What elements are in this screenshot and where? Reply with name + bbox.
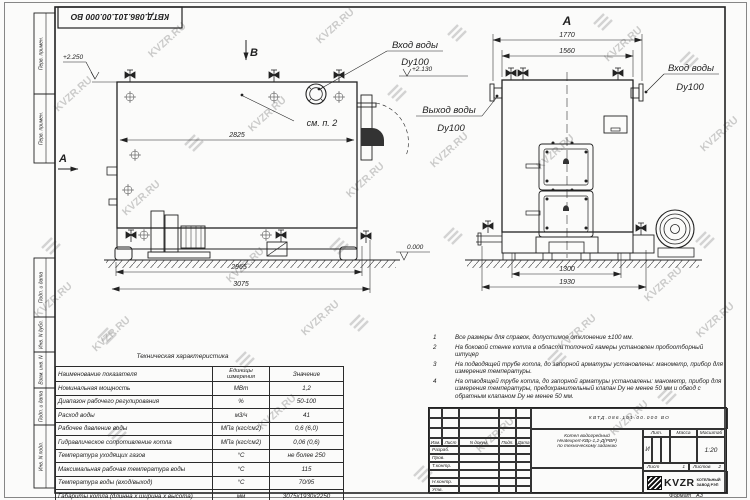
- table-row: Максимальная рабочая температура воды°С1…: [56, 463, 344, 477]
- format-note: Формат А3: [640, 493, 732, 499]
- inlet-water-label-front: Вход воды: [668, 63, 714, 74]
- watermark-text: KVZR.RU: [698, 114, 741, 154]
- row-name: Расход воды: [56, 409, 213, 423]
- row-utv: Утв.: [429, 486, 459, 494]
- elevation-mid: +2.130: [412, 66, 432, 73]
- margin-label-perv-primen-1: Перв. примен.: [39, 37, 45, 70]
- row-value: 3075х1930х2250: [270, 490, 344, 500]
- side-view: [104, 70, 408, 268]
- row-units: м3/ч: [213, 409, 270, 423]
- row-value: не более 250: [270, 449, 344, 463]
- watermark-text: KVZR.RU: [602, 24, 645, 64]
- dim-2965: 2965: [230, 264, 247, 271]
- table-row: Гидравлическое сопротивление котлаМПа (к…: [56, 436, 344, 450]
- note-item: 4На отводящей трубе котла, до запорной а…: [429, 378, 726, 400]
- elevation-zero: 0.000: [407, 244, 424, 251]
- exhaust-fan: [633, 210, 694, 257]
- inlet-water-dn-front: Dy100: [676, 82, 704, 93]
- note-text: На отводящей трубе котла, до запорной ар…: [455, 378, 726, 400]
- dim-1770: 1770: [559, 32, 575, 39]
- dim-2825: 2825: [228, 132, 245, 139]
- row-tkontr: Т.контр.: [429, 462, 459, 470]
- watermark-text: KVZR.RU: [344, 160, 387, 200]
- kvzr-stripes-icon: [647, 476, 662, 490]
- col-izm: Изм.: [429, 438, 442, 446]
- row-name: Диапазон рабочего регулирования: [56, 395, 213, 409]
- dim-3075: 3075: [233, 281, 249, 288]
- table-row: Рабочее давление водыМПа (кгс/см2)0,6 (6…: [56, 422, 344, 436]
- col-data: Дата: [516, 438, 531, 446]
- note-text: На боковой стенке котла в области топочн…: [455, 344, 726, 359]
- row-name: Максимальная рабочая температура воды: [56, 463, 213, 477]
- row-value: 0,6 (6,0): [270, 422, 344, 436]
- row-nkontr: Н.контр.: [429, 478, 459, 486]
- row-value: 0,06 (0,6): [270, 436, 344, 450]
- dim-1930: 1930: [559, 279, 575, 286]
- row-units: °С: [213, 476, 270, 490]
- outlet-water-dn: Dy100: [437, 123, 465, 134]
- kvzr-subtitle-line1: КОТЕЛЬНЫЙ: [697, 478, 721, 482]
- dim-1560: 1560: [559, 48, 575, 55]
- sheets-cell: Листов 2: [689, 463, 725, 471]
- front-view-dimensions: 1770 1560 1300 1930 Вход воды Dy100: [482, 32, 719, 291]
- watermark-text: KVZR.RU: [534, 132, 577, 172]
- revision-header-row: Изм. Лист N докум. Подп. Дата: [429, 438, 531, 446]
- drawing-sheet: KVZR.RU KVZR.RU KVZR.RU KVZR.RU KVZR.RU …: [0, 0, 750, 500]
- col-podp: Подп.: [499, 438, 516, 446]
- empty-cell: [531, 468, 643, 494]
- corner-stamp-designation: КВТД.086.101.00.000 ВО: [70, 12, 169, 22]
- row-value: 1,2: [270, 382, 344, 396]
- row-units: мм: [213, 490, 270, 500]
- watermark-text: KVZR.RU: [642, 264, 685, 304]
- format-label: Формат: [669, 493, 691, 499]
- sheet-cell: Лист 1: [643, 463, 689, 471]
- mass-header: Масса: [670, 429, 697, 437]
- note-item: 3На подводящей трубе котла, до запорной …: [429, 361, 726, 376]
- outlet-water-label: Выход воды: [422, 105, 475, 116]
- tech-col-value: Значение: [270, 367, 344, 382]
- row-name: Гидравлическое сопротивление котла: [56, 436, 213, 450]
- front-drain-valve: [476, 221, 502, 245]
- row-name: Рабочее давление воды: [56, 422, 213, 436]
- row-units: °С: [213, 449, 270, 463]
- note-number: 2: [429, 344, 455, 359]
- burner-fan-unit: [148, 211, 210, 258]
- col-list: Лист: [442, 438, 459, 446]
- elevation-top: +2.250: [63, 54, 83, 61]
- sheet-label: Лист: [647, 465, 659, 470]
- margin-label-inv-dubl: Инв. N дубл.: [39, 320, 45, 349]
- inlet-water-label: Вход воды: [392, 40, 438, 51]
- margin-label-podp-data-2: Подп. и дата: [39, 391, 45, 423]
- watermark-text: KVZR.RU: [246, 94, 289, 134]
- row-razrab: Разраб.: [429, 446, 459, 454]
- note-text: Все размеры для справок, допустимое откл…: [455, 334, 726, 341]
- tech-col-name: Наименование показателя: [56, 367, 213, 382]
- document-name-line3: по техническому заданию: [532, 444, 642, 449]
- margin-label-vzam-inv: Взам. инв. N: [39, 355, 45, 385]
- row-units: °С: [213, 463, 270, 477]
- company-logo: KVZR КОТЕЛЬНЫЙ ЗАВОД РЭП: [643, 471, 728, 494]
- sheet-value: 1: [682, 465, 685, 470]
- row-units: МПа (кгс/см2): [213, 436, 270, 450]
- row-units: %: [213, 395, 270, 409]
- notes-list: 1Все размеры для справок, допустимое отк…: [429, 334, 726, 402]
- scale-header: Масштаб: [697, 429, 725, 437]
- corner-stamp: КВТД.086.101.00.000 ВО: [58, 7, 182, 28]
- title-block: Изм. Лист N докум. Подп. Дата Разраб. Пр…: [428, 407, 727, 493]
- lit-cell-2: [652, 437, 661, 463]
- note-text: На подводящей трубе котла, до запорной а…: [455, 361, 726, 376]
- row-name: Номинальная мощность: [56, 382, 213, 396]
- row-name: Температура уходящих газов: [56, 449, 213, 463]
- margin-label-perv-primen-2: Перв. примен.: [39, 112, 45, 145]
- valve-icons: [125, 70, 371, 243]
- row-value: 115: [270, 463, 344, 477]
- format-value: А3: [696, 493, 703, 499]
- kvzr-subtitle-line2: ЗАВОД РЭП: [697, 483, 721, 487]
- lit-cell-3: [661, 437, 670, 463]
- kvzr-brand: KVZR: [664, 477, 695, 489]
- tech-table-header-row: Наименование показателя Единицы измерени…: [56, 367, 344, 382]
- signature-rows: Разраб. Пров. Т.контр. Н.контр. Утв.: [429, 446, 531, 494]
- note-number: 1: [429, 334, 455, 341]
- note-item: 2На боковой стенке котла в области топоч…: [429, 344, 726, 359]
- view-a-label: А: [562, 14, 572, 28]
- watermark-text: KVZR.RU: [90, 314, 133, 354]
- lit-header: Лит.: [643, 429, 670, 437]
- note-item: 1Все размеры для справок, допустимое отк…: [429, 334, 726, 341]
- sheets-label: Листов: [693, 465, 710, 470]
- watermark-text: KVZR.RU: [299, 298, 342, 338]
- sheets-value: 2: [718, 465, 721, 470]
- row-value: 50-100: [270, 395, 344, 409]
- table-row: Температура уходящих газов°Сне более 250: [56, 449, 344, 463]
- table-row: Диапазон рабочего регулирования%50-100: [56, 395, 344, 409]
- front-view: А: [465, 14, 702, 268]
- row-value: 70/95: [270, 476, 344, 490]
- lit-value: И: [643, 437, 652, 463]
- watermark-text: KVZR.RU: [314, 6, 357, 46]
- col-doc: N докум.: [459, 438, 499, 446]
- outlet-pipe: [357, 95, 408, 160]
- watermark-text: KVZR.RU: [428, 130, 471, 170]
- see-note-label: см. п. 2: [307, 118, 338, 128]
- kvzr-subtitle: КОТЕЛЬНЫЙ ЗАВОД РЭП: [697, 478, 721, 487]
- document-name: Котел водогрейный Heatexpert-КВр-1,2-Д(Р…: [531, 429, 643, 468]
- table-row: Температура воды (вход/выход)°С70/95: [56, 476, 344, 490]
- revision-grid: [429, 408, 531, 438]
- crosshair-marks: [122, 91, 345, 241]
- margin-label-inv-podl: Инв. N подл.: [39, 442, 45, 471]
- tech-table: Наименование показателя Единицы измерени…: [55, 366, 344, 500]
- document-designation: КВТД.086.101.00.000 ВО: [531, 408, 728, 429]
- margin-label-podp-data-1: Подп. и дата: [39, 272, 45, 304]
- table-row: Габариты котла (длинна х ширина х высота…: [56, 490, 344, 500]
- tech-table-title: Техническая характеристика: [46, 353, 319, 360]
- mass-value: [670, 437, 697, 463]
- row-units: МВт: [213, 382, 270, 396]
- watermark-text: KVZR.RU: [120, 178, 163, 218]
- lower-furnace-door: [526, 189, 593, 238]
- watermark-text: KVZR.RU: [52, 74, 95, 114]
- row-prov: Пров.: [429, 454, 459, 462]
- row-name: Температура воды (вход/выход): [56, 476, 213, 490]
- dim-1300: 1300: [559, 266, 575, 273]
- table-row: Номинальная мощностьМВт1,2: [56, 382, 344, 396]
- row-value: 41: [270, 409, 344, 423]
- row-units: МПа (кгс/см2): [213, 422, 270, 436]
- note-number: 4: [429, 378, 455, 400]
- scale-value: 1:20: [697, 437, 725, 463]
- table-row: Расход водым3/ч41: [56, 409, 344, 423]
- note-number: 3: [429, 361, 455, 376]
- row-name: Габариты котла (длинна х ширина х высота…: [56, 490, 213, 500]
- section-a-label: А: [58, 153, 67, 165]
- view-b-label: В: [250, 47, 258, 59]
- tech-col-units: Единицы измерения: [213, 367, 270, 382]
